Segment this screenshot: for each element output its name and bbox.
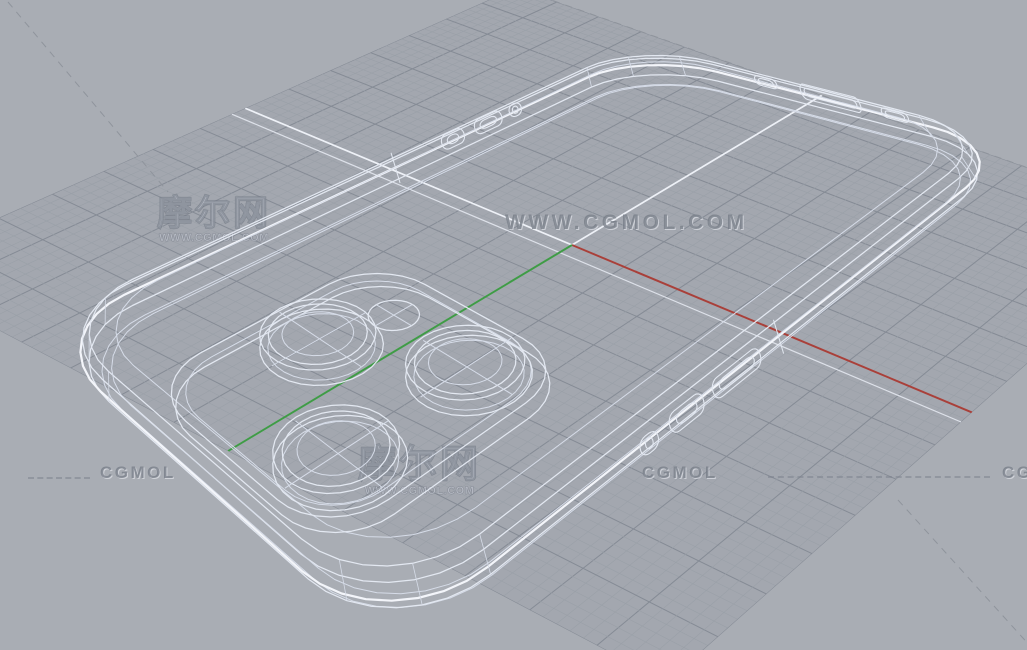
wireframe-phone-model (0, 0, 1027, 650)
cad-viewport[interactable]: 摩尔网 WWW.CGMOL.COM WWW.CGMOL.COM 摩尔网 WWW.… (0, 0, 1027, 650)
